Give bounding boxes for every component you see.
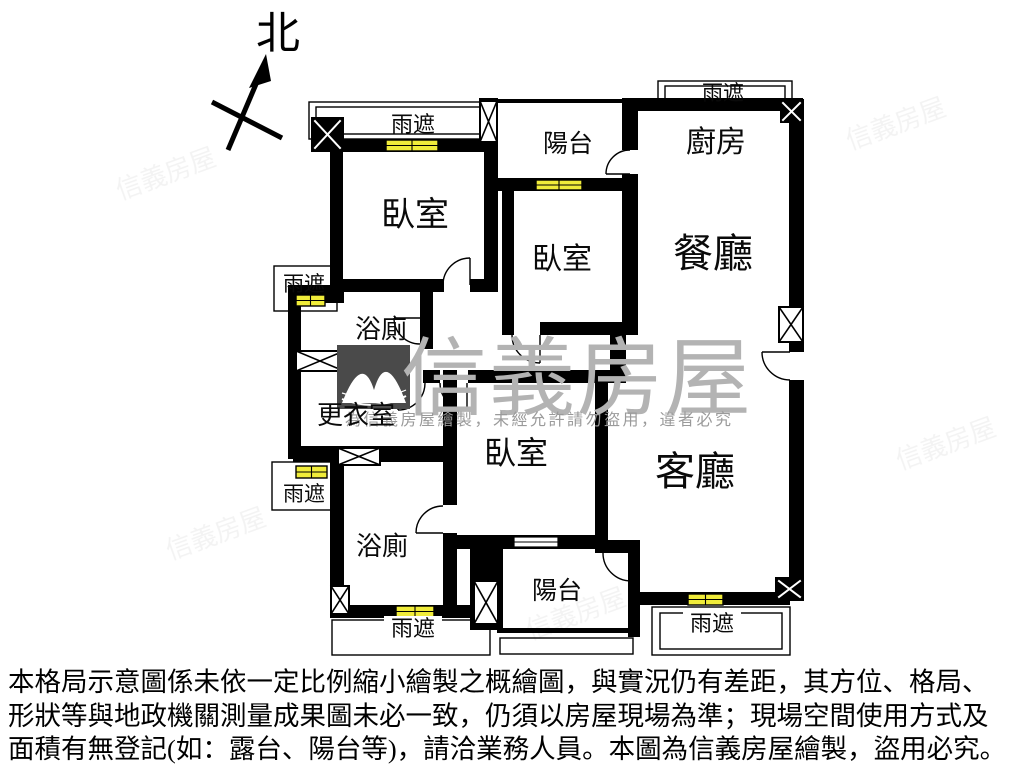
door-arc-balcony1-kitchen	[606, 150, 630, 174]
door-arc-bedroom1	[443, 258, 470, 285]
room-label-bathroom-2: 浴廁	[356, 532, 408, 561]
brand-watermark-notice: 為信義房屋繪製，未經允許請勿盜用，違者必究	[345, 410, 734, 429]
disclaimer-text: 本格局示意圖係未依一定比例縮小繪製之概繪圖，與實況仍有差距，其方位、格局、 形狀…	[8, 666, 1018, 767]
room-label-bedroom-1: 臥室	[381, 196, 449, 234]
room-label-bedroom-2: 臥室	[532, 243, 592, 276]
brand-watermark: 信義房屋 為信義房屋繪製，未經允許請勿盜用，違者必究	[337, 331, 753, 429]
sliding-window-mark	[514, 537, 558, 547]
svg-text:信義房屋: 信義房屋	[112, 143, 220, 206]
disclaimer-line-2: 形狀等與地政機關測量成果圖未必一致，仍須以房屋現場為準；現場空間使用方式及	[8, 700, 1018, 734]
awning-label-bottom-left: 雨遮	[391, 616, 435, 641]
room-label-kitchen: 廚房	[686, 126, 746, 159]
awning-label-top-right: 雨遮	[702, 81, 744, 105]
room-label-balcony-1: 陽台	[543, 130, 593, 158]
floorplan: 信義房屋 信義房屋 信義房屋 信義房屋 信義房屋 北	[0, 0, 1024, 660]
svg-text:信義房屋: 信義房屋	[892, 413, 1000, 476]
door-arc-balcony2	[603, 553, 631, 581]
svg-text:信義房屋: 信義房屋	[162, 503, 270, 566]
compass: 北	[212, 9, 300, 150]
awning-label-top-left: 雨遮	[391, 112, 435, 137]
awning-label-left-lower: 雨遮	[283, 482, 325, 506]
disclaimer-line-1: 本格局示意圖係未依一定比例縮小繪製之概繪圖，與實況仍有差距，其方位、格局、	[8, 666, 1018, 700]
room-label-dining: 餐廳	[673, 231, 753, 276]
awning-label-left-upper: 雨遮	[283, 272, 325, 296]
awning-label-bottom-right: 雨遮	[690, 611, 734, 636]
svg-text:信義房屋: 信義房屋	[842, 93, 950, 156]
awning-outline-bottom-middle	[500, 638, 633, 654]
floorplan-drawing: 信義房屋 信義房屋 信義房屋 信義房屋 信義房屋 北	[0, 0, 1024, 660]
room-label-balcony-2: 陽台	[532, 577, 582, 605]
room-label-bathroom-1: 浴廁	[355, 315, 407, 344]
room-label-bedroom-master: 臥室	[484, 435, 548, 471]
room-label-dressing: 更衣室	[317, 401, 395, 430]
room-label-living: 客廳	[655, 449, 735, 494]
north-label: 北	[256, 9, 300, 58]
north-arrow-head	[249, 54, 271, 88]
disclaimer-line-3: 面積有無登記(如：露台、陽台等)，請洽業務人員。本圖為信義房屋繪製，盜用必究。	[8, 733, 1018, 767]
door-arc-bath2	[416, 506, 443, 533]
door-arc-entry	[762, 352, 790, 380]
